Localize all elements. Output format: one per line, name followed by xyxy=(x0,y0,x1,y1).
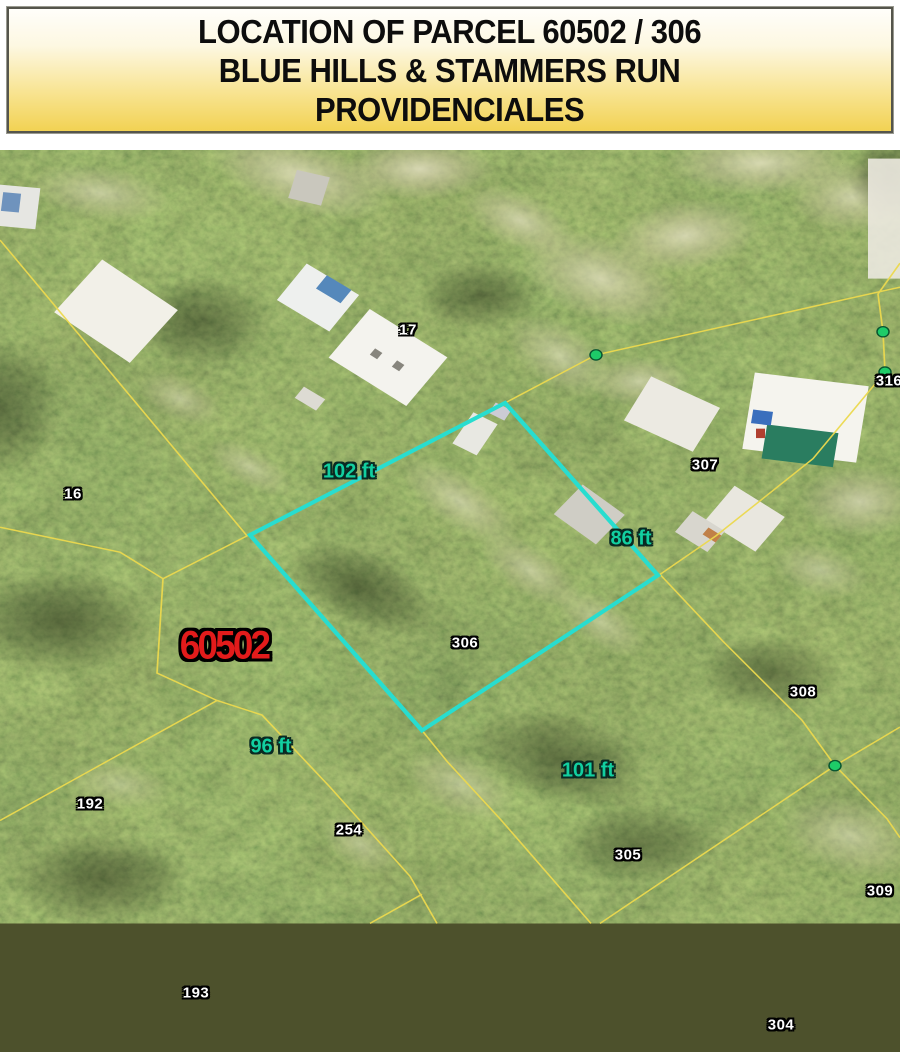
parcel-label-307: 307 xyxy=(692,457,719,474)
parcel-label-193: 193 xyxy=(183,985,210,1002)
parcel-id-label: 60502 xyxy=(180,624,269,669)
parcel-label-192: 192 xyxy=(77,796,104,813)
measurement-right: 86 ft xyxy=(610,528,651,551)
survey-marker-dot xyxy=(590,350,602,360)
title-line-3: PROVIDENCIALES xyxy=(198,90,701,129)
parcel-label-306: 306 xyxy=(452,635,479,652)
parcel-location-flyer: LOCATION OF PARCEL 60502 / 306 BLUE HILL… xyxy=(0,0,900,1052)
parcel-label-308: 308 xyxy=(790,684,817,701)
measurement-top: 102 ft xyxy=(323,461,375,484)
parcel-label-17: 17 xyxy=(399,322,417,339)
parcel-label-305: 305 xyxy=(615,847,642,864)
parcel-label-16: 16 xyxy=(64,486,82,503)
parcel-label-304: 304 xyxy=(768,1017,795,1034)
aerial-map: 17 316 16 307 306 308 192 254 305 309 19… xyxy=(0,150,900,1052)
survey-marker-dot xyxy=(829,760,841,770)
measurement-bottom: 101 ft xyxy=(562,760,614,783)
title-banner: LOCATION OF PARCEL 60502 / 306 BLUE HILL… xyxy=(7,7,893,133)
parcel-label-316: 316 xyxy=(876,373,900,390)
title-line-2: BLUE HILLS & STAMMERS RUN xyxy=(198,51,701,90)
title-text: LOCATION OF PARCEL 60502 / 306 BLUE HILL… xyxy=(198,12,701,129)
parcel-label-309: 309 xyxy=(867,883,894,900)
aerial-photo xyxy=(0,150,900,1052)
survey-marker-dot xyxy=(877,327,889,337)
measurement-left: 96 ft xyxy=(250,736,291,759)
parcel-label-254: 254 xyxy=(336,822,363,839)
title-line-1: LOCATION OF PARCEL 60502 / 306 xyxy=(198,12,701,51)
